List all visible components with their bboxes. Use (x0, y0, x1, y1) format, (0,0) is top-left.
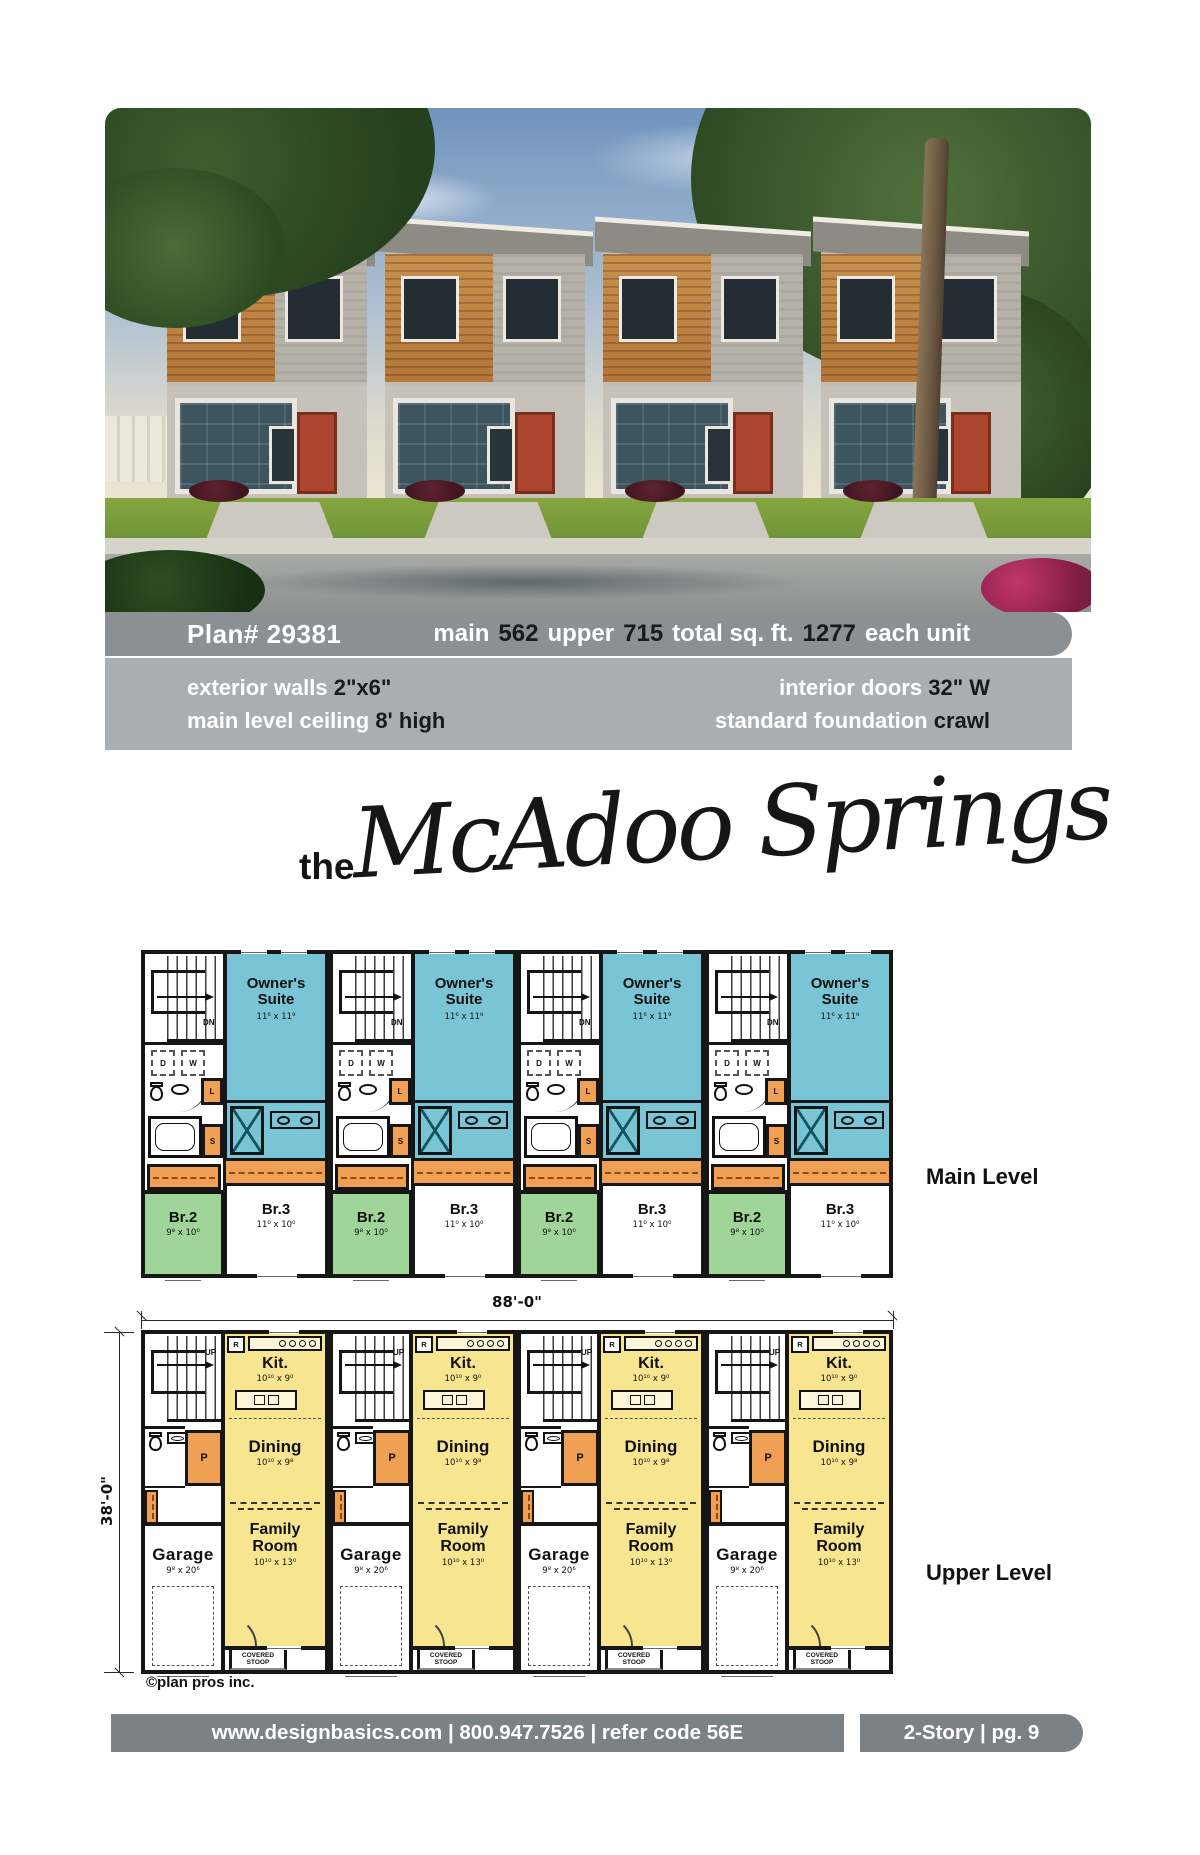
burner (685, 1340, 692, 1347)
covered-stoop-label: COVERED STOOP (796, 1652, 848, 1667)
burner (279, 1340, 286, 1347)
stair-arrow (345, 996, 399, 998)
bedroom3-dims: 11⁰ x 10⁰ (227, 1220, 325, 1230)
washer: W (745, 1050, 769, 1076)
spec-row: standard foundation crawl (715, 708, 990, 734)
interior-wall (145, 1486, 185, 1488)
window (821, 1274, 861, 1278)
burner (665, 1340, 672, 1347)
shower (418, 1106, 452, 1155)
spec-info-band: exterior walls 2"x6" main level ceiling … (105, 658, 1072, 750)
refrigerator: R (791, 1336, 809, 1353)
stair-return (339, 970, 393, 1014)
main-level-unit: Owner's Suite 11⁶ x 11⁹ Br.3 11⁰ x 10⁰ D… (517, 950, 705, 1278)
spec-value: 2"x6" (334, 675, 392, 700)
window (657, 950, 683, 954)
toilet (525, 1436, 538, 1451)
stair-arrow (157, 1364, 211, 1366)
kitchen-dims: 10¹⁰ x 9⁰ (601, 1374, 701, 1384)
kitchen-dims: 10¹⁰ x 9⁰ (225, 1374, 325, 1384)
shrub-bed (843, 480, 903, 502)
family-room-name: Family Room (432, 1522, 494, 1555)
stair-direction-label: DN (579, 1018, 591, 1027)
dining-dims: 10¹⁰ x 9⁸ (413, 1458, 513, 1468)
window (429, 950, 455, 954)
main-level-unit: Owner's Suite 11⁶ x 11⁹ Br.3 11⁰ x 10⁰ D… (329, 950, 517, 1278)
plan-brochure-page: Plan# 29381 main 562 upper 715 total sq.… (0, 0, 1200, 1855)
shrub-bed (189, 480, 249, 502)
entry-door-swing (227, 1616, 257, 1646)
vanity-sink (653, 1116, 666, 1125)
interior-wall (709, 1486, 749, 1488)
vanity (834, 1111, 884, 1129)
room-divider-dashed (606, 1502, 696, 1504)
bath-sink (543, 1432, 563, 1444)
entry-sidelight (269, 426, 297, 484)
family-room-name: Family Room (808, 1522, 870, 1555)
owners-suite-dims: 11⁶ x 11⁹ (415, 1012, 513, 1022)
shelf-closet: S (202, 1124, 223, 1158)
bath-sink (167, 1432, 187, 1444)
bedroom3-label: Br.3 (791, 1202, 889, 1218)
spec-value: 32" W (928, 675, 990, 700)
interior-wall (709, 1426, 749, 1429)
owners-suite-label: Owner's Suite (603, 976, 701, 1007)
window (617, 950, 643, 954)
entry-sidelight (487, 426, 515, 484)
entry-door (951, 412, 991, 494)
bedroom2-room: Br.2 9⁸ x 10⁰ (145, 1190, 225, 1274)
burner (299, 1340, 306, 1347)
footer-contact-bar: www.designbasics.com | 800.947.7526 | re… (111, 1714, 844, 1752)
plan-number: Plan# 29381 (187, 619, 341, 650)
interior-wall (521, 1486, 561, 1488)
owners-suite-dims: 11⁶ x 11⁹ (791, 1012, 889, 1022)
island-sink (442, 1395, 453, 1405)
counter-dashed-line (793, 1418, 885, 1419)
spec-label-total: total sq. ft. (672, 620, 793, 648)
bedroom3-label: Br.3 (227, 1202, 325, 1218)
stair-return (339, 1350, 393, 1394)
kitchen-dims: 10¹⁰ x 9⁰ (789, 1374, 889, 1384)
spec-value-main: 562 (498, 620, 538, 648)
shelf-closet: S (766, 1124, 787, 1158)
wardrobe (599, 1158, 701, 1186)
garage-room: Garage 9⁸ x 20⁶ (709, 1522, 789, 1670)
stair-return (715, 970, 769, 1014)
upper-window (503, 276, 561, 342)
garage-door-opening (345, 1674, 397, 1678)
pantry: P (561, 1430, 599, 1486)
refrigerator: R (415, 1336, 433, 1353)
burner (467, 1340, 474, 1347)
owners-suite-label: Owner's Suite (415, 976, 513, 1007)
upper-level-unit: R Kit. 10¹⁰ x 9⁰ Dining 10¹⁰ x 9⁸ Family… (705, 1330, 893, 1674)
burner (843, 1340, 850, 1347)
bedroom3-dims: 11⁰ x 10⁰ (791, 1220, 889, 1230)
vanity (646, 1111, 696, 1129)
spec-value: 8' high (375, 708, 445, 733)
covered-stoop-label: COVERED STOOP (232, 1652, 284, 1667)
bedroom3-label: Br.3 (603, 1202, 701, 1218)
vanity-sink (676, 1116, 689, 1125)
stair-direction-label: UP (581, 1348, 592, 1357)
burner (497, 1340, 504, 1347)
dining-label: Dining (413, 1438, 513, 1456)
owners-suite-name: Owner's Suite (426, 976, 502, 1007)
living-zone: R Kit. 10¹⁰ x 9⁰ Dining 10¹⁰ x 9⁸ Family… (221, 1334, 325, 1650)
height-dimension-label: 38'-0" (98, 1446, 116, 1556)
bathtub (524, 1116, 578, 1158)
plan-name-script: McAdoo Springs (350, 757, 1094, 893)
spec-row: main level ceiling 8' high (187, 708, 445, 734)
upper-level-unit: R Kit. 10¹⁰ x 9⁰ Dining 10¹⁰ x 9⁸ Family… (517, 1330, 705, 1674)
stair-direction-label: DN (391, 1018, 403, 1027)
toilet (337, 1436, 350, 1451)
stair-return (527, 970, 581, 1014)
dining-dims: 10¹⁰ x 9⁸ (225, 1458, 325, 1468)
covered-stoop: COVERED STOOP (605, 1650, 663, 1670)
spec-value: crawl (934, 708, 990, 733)
pantry: P (749, 1430, 787, 1486)
linen-closet: L (577, 1078, 599, 1105)
wardrobe (787, 1158, 889, 1186)
coat-closet (333, 1490, 346, 1524)
upper-window (401, 276, 459, 342)
spec-label-each-unit: each unit (865, 620, 970, 648)
window (729, 1278, 765, 1282)
shelf-closet: S (390, 1124, 411, 1158)
family-room-label: Family Room (789, 1522, 889, 1555)
vanity (458, 1111, 508, 1129)
toilet (714, 1086, 727, 1101)
garage-door-opening (721, 1674, 773, 1678)
owners-suite-name: Owner's Suite (614, 976, 690, 1007)
dresser (335, 1164, 409, 1190)
vanity-sink (488, 1116, 501, 1125)
vanity (270, 1111, 320, 1129)
vanity-sink (864, 1116, 877, 1125)
height-dimension-line (119, 1332, 120, 1672)
upper-window (939, 276, 997, 342)
counter-dashed-line (229, 1418, 321, 1419)
interior-wall (333, 1486, 373, 1488)
shrub-bed (625, 480, 685, 502)
dining-dims: 10¹⁰ x 9⁸ (601, 1458, 701, 1468)
refrigerator: R (603, 1336, 621, 1353)
owners-bath (791, 1100, 889, 1158)
toilet (149, 1436, 162, 1451)
burner (309, 1340, 316, 1347)
copyright-text: ©plan pros inc. (146, 1674, 255, 1691)
entry-door-swing (791, 1616, 821, 1646)
upper-level-unit: R Kit. 10¹⁰ x 9⁰ Dining 10¹⁰ x 9⁸ Family… (141, 1330, 329, 1674)
plan-banner: Plan# 29381 main 562 upper 715 total sq.… (105, 612, 1072, 656)
family-room-dims: 10¹⁰ x 13⁰ (601, 1558, 701, 1568)
stair-direction-label: UP (393, 1348, 404, 1357)
footer-page-bar: 2-Story | pg. 9 (860, 1714, 1083, 1752)
kitchen-island (611, 1390, 673, 1410)
car-pad-dashed (528, 1586, 590, 1666)
stair-arrow (533, 1364, 587, 1366)
covered-stoop-label: COVERED STOOP (608, 1652, 660, 1667)
kitchen-dims: 10¹⁰ x 9⁰ (413, 1374, 513, 1384)
window (269, 1330, 299, 1334)
owners-suite-room: Owner's Suite 11⁶ x 11⁹ (787, 954, 889, 1158)
main-level-label: Main Level (926, 1164, 1038, 1190)
driveway (859, 502, 989, 542)
bedroom3-room: Br.3 11⁰ x 10⁰ (411, 1186, 513, 1274)
interior-wall (333, 1426, 373, 1429)
owners-suite-dims: 11⁶ x 11⁹ (227, 1012, 325, 1022)
interior-wall (709, 1042, 787, 1045)
bedroom2-room: Br.2 9⁸ x 10⁰ (333, 1190, 413, 1274)
stair-arrow (345, 1364, 399, 1366)
garage-dims: 9⁸ x 20⁶ (333, 1566, 409, 1576)
window (445, 1274, 485, 1278)
main-level-unit: Owner's Suite 11⁶ x 11⁹ Br.3 11⁰ x 10⁰ D… (705, 950, 893, 1278)
townhouse-unit (385, 240, 585, 502)
owners-suite-name: Owner's Suite (802, 976, 878, 1007)
family-room-label: Family Room (225, 1522, 325, 1555)
pantry: P (185, 1430, 223, 1486)
window (633, 1274, 673, 1278)
spec-value-total: 1277 (803, 620, 856, 648)
interior-wall (521, 1426, 561, 1429)
footer-contact-text: www.designbasics.com | 800.947.7526 | re… (212, 1721, 743, 1745)
spec-row: interior doors 32" W (715, 675, 990, 701)
island-sink (818, 1395, 829, 1405)
owners-suite-room: Owner's Suite 11⁶ x 11⁹ (411, 954, 513, 1158)
bedroom3-room: Br.3 11⁰ x 10⁰ (599, 1186, 701, 1274)
spec-row: exterior walls 2"x6" (187, 675, 445, 701)
garage-label: Garage (709, 1546, 785, 1564)
garage-label: Garage (521, 1546, 597, 1564)
bath-sink (355, 1432, 375, 1444)
bedroom2-room: Br.2 9⁸ x 10⁰ (521, 1190, 601, 1274)
spec-label: interior doors (779, 675, 922, 700)
bedroom2-label: Br.2 (521, 1210, 597, 1226)
spec-label: standard foundation (715, 708, 928, 733)
family-room-dims: 10¹⁰ x 13⁰ (413, 1558, 513, 1568)
window (541, 1278, 577, 1282)
owners-bath (415, 1100, 513, 1158)
window (833, 1330, 863, 1334)
car-pad-dashed (152, 1586, 214, 1666)
sqft-specs: main 562 upper 715 total sq. ft. 1277 ea… (433, 620, 970, 648)
bedroom2-dims: 9⁸ x 10⁰ (709, 1228, 785, 1238)
entry-door (515, 412, 555, 494)
stair-direction-label: DN (203, 1018, 215, 1027)
window (165, 1278, 201, 1282)
bedroom3-room: Br.3 11⁰ x 10⁰ (787, 1186, 889, 1274)
entry-door (297, 412, 337, 494)
bedroom3-room: Br.3 11⁰ x 10⁰ (223, 1186, 325, 1274)
coat-closet (521, 1490, 534, 1524)
vanity-sink (841, 1116, 854, 1125)
bedroom3-label: Br.3 (415, 1202, 513, 1218)
spec-col-right: interior doors 32" W standard foundation… (715, 675, 990, 734)
kitchen-label: Kit. (225, 1356, 325, 1373)
island-sink (832, 1395, 843, 1405)
bedroom3-dims: 11⁰ x 10⁰ (603, 1220, 701, 1230)
dining-label: Dining (789, 1438, 889, 1456)
window (257, 1274, 297, 1278)
bathtub (712, 1116, 766, 1158)
window (845, 950, 871, 954)
family-room-label: Family Room (413, 1522, 513, 1555)
stair-return (151, 970, 205, 1014)
driveway (205, 502, 335, 542)
wardrobe (223, 1158, 325, 1186)
coat-closet (709, 1490, 722, 1524)
burner (873, 1340, 880, 1347)
townhouse-unit (603, 240, 803, 502)
upper-window (619, 276, 677, 342)
car-pad-dashed (340, 1586, 402, 1666)
dryer: D (715, 1050, 739, 1076)
spec-label-upper: upper (547, 620, 614, 648)
window (241, 950, 267, 954)
cooktop-counter (812, 1336, 886, 1351)
toilet (338, 1086, 351, 1101)
burner (289, 1340, 296, 1347)
wardrobe (411, 1158, 513, 1186)
counter-dashed-line (417, 1418, 509, 1419)
footer-page-text: 2-Story | pg. 9 (904, 1721, 1040, 1745)
owners-suite-dims: 11⁶ x 11⁹ (603, 1012, 701, 1022)
window (281, 950, 307, 954)
garage-door-opening (533, 1674, 585, 1678)
kitchen-island (235, 1390, 297, 1410)
washer: W (369, 1050, 393, 1076)
cooktop-counter (436, 1336, 510, 1351)
window (457, 1330, 487, 1334)
spec-label-main: main (433, 620, 489, 648)
spec-col-left: exterior walls 2"x6" main level ceiling … (187, 675, 445, 734)
covered-stoop: COVERED STOOP (229, 1650, 287, 1670)
bedroom2-label: Br.2 (709, 1210, 785, 1226)
room-divider-dashed (794, 1502, 884, 1504)
vanity-sink (277, 1116, 290, 1125)
dimension-tick (104, 1672, 134, 1673)
dryer: D (339, 1050, 363, 1076)
kitchen-island (423, 1390, 485, 1410)
owners-suite-room: Owner's Suite 11⁶ x 11⁹ (599, 954, 701, 1158)
vanity-sink (300, 1116, 313, 1125)
driveway (423, 502, 553, 542)
island-sink (268, 1395, 279, 1405)
bedroom2-dims: 9⁸ x 10⁰ (521, 1228, 597, 1238)
family-room-name: Family Room (244, 1522, 306, 1555)
upper-window (837, 276, 895, 342)
bath-sink (731, 1432, 751, 1444)
entry-door-swing (603, 1616, 633, 1646)
dresser (523, 1164, 597, 1190)
island-sink (456, 1395, 467, 1405)
garage-dims: 9⁸ x 20⁶ (145, 1566, 221, 1576)
kitchen-label: Kit. (601, 1356, 701, 1373)
owners-suite-room: Owner's Suite 11⁶ x 11⁹ (223, 954, 325, 1158)
width-dimension-line (141, 1320, 893, 1321)
dining-label: Dining (225, 1438, 325, 1456)
cooktop-counter (248, 1336, 322, 1351)
burner (655, 1340, 662, 1347)
car-pad-dashed (716, 1586, 778, 1666)
room-divider-dashed (230, 1502, 320, 1504)
dresser (711, 1164, 785, 1190)
washer: W (181, 1050, 205, 1076)
covered-stoop: COVERED STOOP (417, 1650, 475, 1670)
main-level-unit: Owner's Suite 11⁶ x 11⁹ Br.3 11⁰ x 10⁰ D… (141, 950, 329, 1278)
dimension-tick (141, 1311, 142, 1329)
interior-wall (145, 1426, 185, 1429)
stair-arrow (533, 996, 587, 998)
window (353, 1278, 389, 1282)
garage-label: Garage (333, 1546, 409, 1564)
bathtub (148, 1116, 202, 1158)
toilet (526, 1086, 539, 1101)
dimension-tick (893, 1311, 894, 1329)
room-divider-dashed (418, 1502, 508, 1504)
owners-bath (227, 1100, 325, 1158)
dining-label: Dining (601, 1438, 701, 1456)
garage-room: Garage 9⁸ x 20⁶ (145, 1522, 225, 1670)
entry-sidelight (705, 426, 733, 484)
island-sink (644, 1395, 655, 1405)
window (469, 950, 495, 954)
toilet (713, 1436, 726, 1451)
linen-closet: L (201, 1078, 223, 1105)
shower (794, 1106, 828, 1155)
spec-label: main level ceiling (187, 708, 369, 733)
stair-arrow (721, 1364, 775, 1366)
burner (853, 1340, 860, 1347)
family-room-label: Family Room (601, 1522, 701, 1555)
spec-value-upper: 715 (623, 620, 663, 648)
kitchen-label: Kit. (789, 1356, 889, 1373)
stair-direction-label: DN (767, 1018, 779, 1027)
bedroom2-room: Br.2 9⁸ x 10⁰ (709, 1190, 789, 1274)
owners-suite-label: Owner's Suite (227, 976, 325, 1007)
window (645, 1330, 675, 1334)
garage-room: Garage 9⁸ x 20⁶ (333, 1522, 413, 1670)
plan-name-prefix: the (299, 846, 355, 888)
burner (477, 1340, 484, 1347)
window (805, 950, 831, 954)
island-sink (254, 1395, 265, 1405)
shower (230, 1106, 264, 1155)
stair-return (715, 1350, 769, 1394)
entry-door (733, 412, 773, 494)
family-room-dims: 10¹⁰ x 13⁰ (789, 1558, 889, 1568)
linen-closet: L (765, 1078, 787, 1105)
sidewalk (105, 538, 1091, 554)
burner (487, 1340, 494, 1347)
refrigerator: R (227, 1336, 245, 1353)
dining-dims: 10¹⁰ x 9⁸ (789, 1458, 889, 1468)
street-patch (245, 564, 805, 600)
entry-door-swing (415, 1616, 445, 1646)
living-zone: R Kit. 10¹⁰ x 9⁰ Dining 10¹⁰ x 9⁸ Family… (409, 1334, 513, 1650)
main-level-floorplan: Owner's Suite 11⁶ x 11⁹ Br.3 11⁰ x 10⁰ D… (141, 950, 893, 1278)
washer: W (557, 1050, 581, 1076)
shelf-closet: S (578, 1124, 599, 1158)
bedroom2-label: Br.2 (145, 1210, 221, 1226)
pantry: P (373, 1430, 411, 1486)
living-zone: R Kit. 10¹⁰ x 9⁰ Dining 10¹⁰ x 9⁸ Family… (785, 1334, 889, 1650)
garage-dims: 9⁸ x 20⁶ (709, 1566, 785, 1576)
